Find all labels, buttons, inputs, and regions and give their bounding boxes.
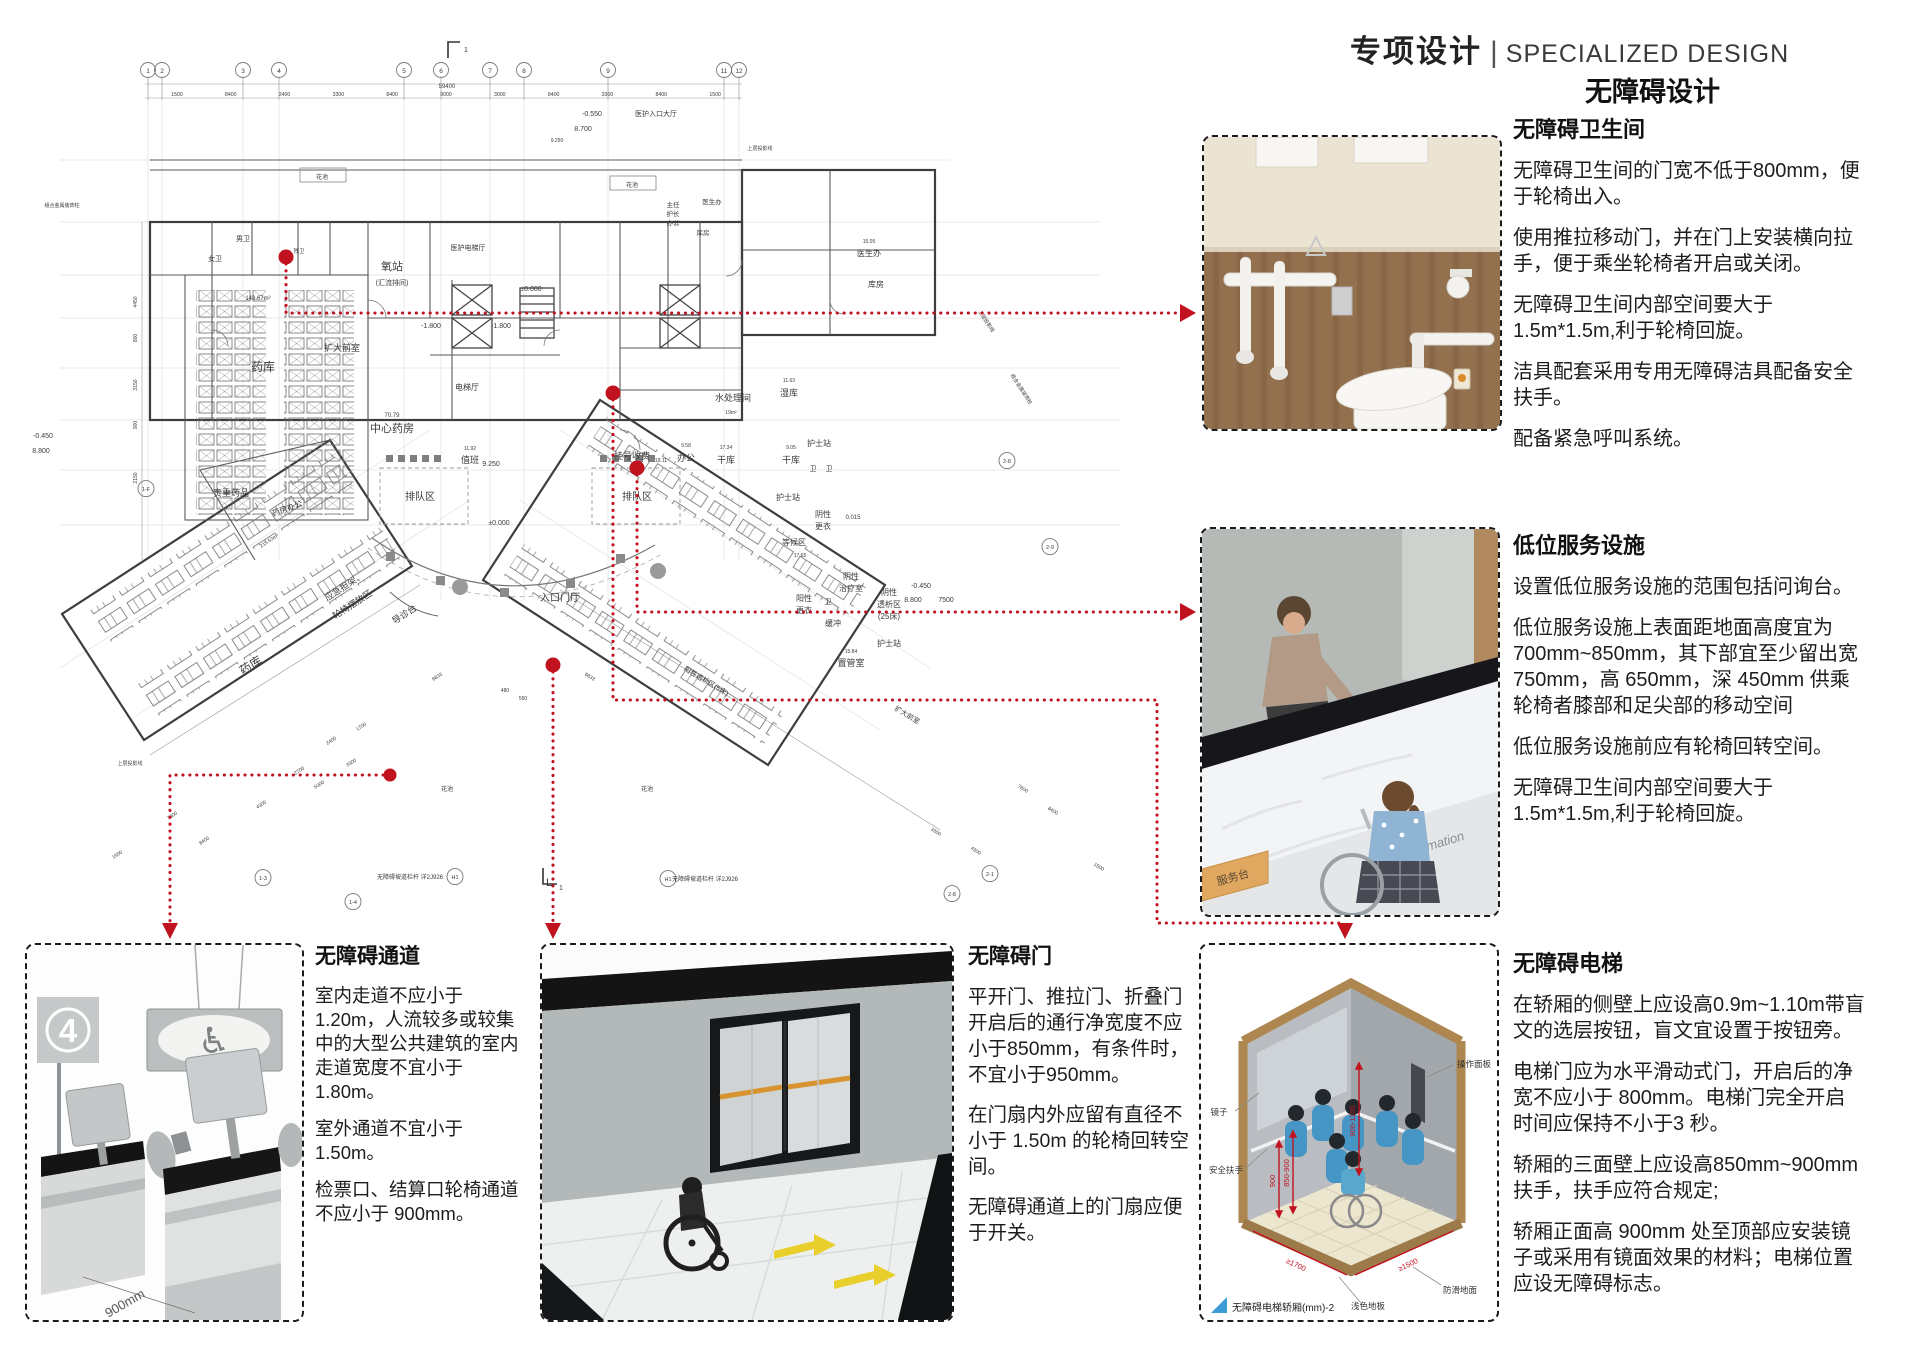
section-accessible-elevator: 无障碍电梯 在轿厢的侧壁上应设高0.9m~1.10m带盲文的选层按钮，盲文宜设置… — [1513, 946, 1865, 1312]
plan-label: 8 — [522, 68, 526, 75]
plan-label: 8400 — [386, 92, 398, 98]
accessible-toilet-photo — [1202, 135, 1502, 431]
plan-label: 水处理间 — [715, 392, 751, 403]
plan-label: 7 — [488, 68, 492, 75]
paragraph: 设置低位服务设施的范围包括问询台。 — [1513, 574, 1865, 600]
plan-label: 9.250 — [482, 461, 500, 468]
plan-label: 11.63 — [783, 378, 795, 384]
plan-label: 4450 — [133, 296, 139, 307]
paragraph: 低位服务设施前应有轮椅回转空间。 — [1513, 734, 1865, 760]
plan-label: 办公 — [667, 218, 681, 227]
plan-label: 2700 — [293, 765, 306, 776]
plan-label: ±0.000 — [520, 286, 541, 293]
plan-label: 3000 — [494, 92, 506, 98]
plan-label: 库房 — [868, 279, 884, 289]
plan-label: 3 — [241, 68, 245, 75]
plan-label: -1.800 — [421, 323, 441, 330]
plan-label: 置管室 — [837, 657, 864, 668]
plan-label: 4300 — [255, 799, 268, 810]
plan-label: 等候区 — [782, 537, 806, 547]
plan-label: 无障碍坡道栏杆 详2J926 — [672, 875, 739, 883]
low-counter-render: Information 服务台 — [1200, 527, 1500, 917]
plan-label: 医生办 — [857, 248, 881, 258]
section-body: 平开门、推拉门、折叠门开启后的通行净宽度不应小于850mm，有条件时，不宜小于9… — [968, 984, 1192, 1246]
plan-label: 1500 — [1092, 862, 1105, 873]
plan-label: 组合金属装饰柱 — [44, 202, 79, 209]
section-body: 室内走道不应小于1.20m，人流较多或较集中的大型公共建筑的室内走道宽度不宜小于… — [315, 984, 521, 1226]
plan-label: 8400 — [655, 92, 667, 98]
plan-label: 3300 — [929, 827, 942, 838]
plan-label: 148.67m² — [245, 296, 270, 302]
plan-label: 花池 — [641, 785, 653, 793]
plan-shelving — [85, 290, 867, 745]
plan-label: 药库 — [251, 359, 275, 374]
plan-label: 8.800 — [32, 448, 50, 455]
page: 专项设计|SPECIALIZED DESIGN 无障碍设计 — [0, 0, 1920, 1358]
section-body: 在轿厢的侧壁上应设高0.9m~1.10m带盲文的选层按钮，盲文宜设置于按钮旁。电… — [1513, 992, 1865, 1297]
plan-label: 800 — [133, 334, 139, 343]
plan-label: 480 — [501, 688, 510, 694]
plan-label: 2400 — [279, 92, 291, 98]
plan-label: 护士站 — [807, 438, 831, 448]
plan-label: ±0.000 — [488, 520, 509, 527]
lift-figure-caption: 无障碍电梯轿厢(mm)-2 — [1232, 1301, 1335, 1314]
paragraph: 轿厢的三面壁上应设高850mm~900mm 扶手，扶手应符合规定; — [1513, 1152, 1865, 1204]
label-control-panel: 操作面板 — [1457, 1059, 1492, 1069]
plan-label: 1-F — [142, 487, 151, 493]
plan-label: 排队区 — [405, 490, 435, 503]
plan-label: 无障碍坡道栏杆 详2J926 — [377, 873, 444, 881]
paragraph: 洁具配套采用专用无障碍洁具配备安全扶手。 — [1513, 359, 1865, 411]
plan-label: 阴性 — [815, 509, 831, 519]
plan-label: 上层投影线 — [117, 760, 142, 767]
plan-label: 卫 — [825, 598, 832, 606]
plan-label: 5300 — [313, 779, 326, 790]
plan-elevator-cores — [452, 285, 700, 348]
plan-label: 干库 — [782, 454, 800, 465]
plan-label: 550 — [519, 696, 528, 702]
label-antislip-floor: 防滑地面 — [1443, 1285, 1478, 1295]
section-low-counter: 低位服务设施 设置低位服务设施的范围包括问询台。低位服务设施上表面距地面高度宜为… — [1513, 528, 1865, 842]
plan-room-labels: 男卫女卫残卫药库148.67m²氧站(汇流排间)医护电梯厅扩大前室中心药房70.… — [32, 47, 1105, 892]
plan-label: 更衣 — [815, 521, 831, 531]
plan-label: -1.800 — [491, 323, 511, 330]
plan-label: 9.250 — [551, 138, 564, 144]
arrow-right-icon — [1180, 304, 1196, 322]
paragraph: 无障碍通道上的门扇应便于开关。 — [968, 1194, 1192, 1246]
section-body: 无障碍卫生间的门宽不低于800mm，便于轮椅出入。使用推拉移动门，并在门上安装横… — [1513, 158, 1865, 452]
paragraph: 在门扇内外应留有直径不小于 1.50m 的轮椅回转空间。 — [968, 1102, 1192, 1180]
dim-depth: ≥1700 — [1285, 1256, 1308, 1273]
paragraph: 无障碍卫生间内部空间要大于1.5m*1.5m,利于轮椅回旋。 — [1513, 292, 1865, 344]
plan-label: H1 — [451, 875, 458, 881]
plan-label: 15.05 — [863, 239, 876, 245]
paragraph: 在轿厢的侧壁上应设高0.9m~1.10m带盲文的选层按钮，盲文宜设置于按钮旁。 — [1513, 992, 1865, 1044]
plan-label: 中心药房 — [370, 422, 414, 435]
plan-label: 入口门厅 — [540, 591, 580, 604]
plan-label: 7800 — [1016, 784, 1029, 795]
plan-label: 办公 — [677, 452, 695, 463]
plan-label: 11.92 — [464, 446, 476, 452]
plan-label: 花池 — [626, 181, 638, 189]
plan-label: 3300 — [333, 92, 345, 98]
plan-label: L — [546, 877, 552, 889]
dim-900: 900 — [1268, 1175, 1277, 1188]
plan-label: 护长 — [667, 209, 681, 218]
plan-label: 男卫 — [236, 235, 250, 243]
plan-label: 主任 — [667, 200, 681, 209]
plan-label: 59400 — [439, 84, 456, 90]
plan-label: 8400 — [225, 92, 237, 98]
plan-label: 0.015 — [845, 515, 861, 521]
plan-label: 库房 — [697, 228, 710, 237]
plan-label: 8400 — [1046, 806, 1059, 817]
plan-label: 氧站 — [381, 259, 403, 273]
plan-label: 花池 — [441, 785, 453, 793]
plan-label: 3150 — [133, 379, 139, 390]
plan-label: 8.700 — [574, 126, 592, 133]
plan-label: -0.550 — [582, 111, 602, 118]
accessible-door-render — [540, 943, 954, 1322]
section-accessible-passage: 无障碍通道 室内走道不应小于1.20m，人流较多或较集中的大型公共建筑的室内走道… — [315, 940, 521, 1239]
plan-label: 900 — [133, 421, 139, 430]
paragraph: 无障碍卫生间的门宽不低于800mm，便于轮椅出入。 — [1513, 158, 1865, 210]
plan-label: 1-4 — [349, 900, 357, 906]
plan-label: 1 — [146, 68, 150, 75]
label-mirror: 镜子 — [1210, 1107, 1228, 1117]
plan-label: 阴性 — [843, 571, 859, 581]
plan-top-dimensions: 1500840024003300840090003000840033008400… — [171, 92, 721, 98]
plan-label: 6833 — [431, 671, 444, 682]
label-handrail: 安全扶手 — [1209, 1165, 1244, 1175]
plan-label: 11 — [721, 68, 728, 75]
section-title: 无障碍通道 — [315, 940, 521, 970]
section-title: 无障碍门 — [968, 940, 1192, 970]
plan-label: 7500 — [938, 597, 954, 604]
section-title: 无障碍电梯 — [1513, 946, 1865, 978]
plan-label: 15.84 — [845, 649, 858, 655]
plan-label: 1500 — [111, 849, 124, 860]
plan-label: 干库 — [717, 454, 735, 465]
plan-label: 上层投影线 — [747, 145, 772, 152]
plan-label: 上层投影线 — [977, 309, 996, 334]
plan-label: 2400 — [325, 735, 338, 746]
plan-label: 2 — [160, 68, 164, 75]
plan-label: 缓冲 — [825, 618, 841, 628]
aisle-number: 4 — [59, 1012, 78, 1049]
section-accessible-toilet: 无障碍卫生间 无障碍卫生间的门宽不低于800mm，便于轮椅出入。使用推拉移动门，… — [1513, 112, 1865, 467]
plan-label: 卫 — [810, 465, 817, 473]
section-title: 无障碍卫生间 — [1513, 112, 1865, 144]
arrow-right-icon — [1180, 603, 1196, 621]
header-title-cn: 专项设计 — [1350, 34, 1482, 69]
plan-label: 医护电梯厅 — [451, 243, 486, 252]
arrow-down-icon — [1337, 923, 1353, 939]
paper-holder-icon — [1450, 269, 1472, 277]
plan-label: 17.34 — [720, 445, 733, 451]
plan-label: 17.65 — [794, 553, 807, 559]
plan-label: 电梯厅 — [455, 382, 479, 392]
paragraph: 室外通道不宜小于1.50m。 — [315, 1117, 521, 1165]
section-body: 设置低位服务设施的范围包括问询台。低位服务设施上表面距地面高度宜为700mm~8… — [1513, 574, 1865, 827]
plan-label: 4300 — [969, 846, 982, 857]
flush-panel-icon — [1332, 287, 1352, 315]
plan-label: 9.58 — [681, 443, 691, 449]
page-subtitle: 无障碍设计 — [1350, 70, 1720, 109]
plan-label: 19m² — [725, 410, 737, 416]
plan-label: 护士站 — [877, 638, 901, 648]
plan-label: 4 — [277, 68, 281, 75]
plan-label: 贵重药品 — [213, 487, 249, 498]
plan-label: -0.450 — [911, 583, 931, 590]
plan-label: 1-3 — [259, 876, 267, 882]
plan-label: 治疗室 — [839, 583, 863, 593]
plan-label: 花池 — [316, 173, 328, 181]
plan-label: -0.450 — [33, 433, 53, 440]
accessible-elevator-render: 900 850-900 900-1100 ≥1700 ≥1500 镜子 安全扶手… — [1199, 943, 1499, 1322]
plan-label: 2-9 — [1046, 545, 1054, 551]
plan-label: 湿库 — [780, 387, 798, 398]
plan-label: 8.800 — [904, 597, 922, 604]
plan-label: 7800 — [166, 810, 179, 821]
plan-label: 扩大前室 — [893, 704, 922, 726]
plan-label: 值班 — [461, 454, 479, 465]
plan-label: 70.79 — [384, 413, 400, 419]
paper-roll-icon — [1447, 276, 1469, 298]
paragraph: 电梯门应为水平滑动式门，开启后的净宽不应小于 800mm。电梯门完全开启时间应保… — [1513, 1059, 1865, 1137]
plan-label: 医生办 — [702, 197, 722, 206]
dim-900-1100: 900-1100 — [1348, 1105, 1357, 1136]
plan-label: 3300 — [345, 757, 358, 768]
plan-label: 6 — [439, 68, 443, 75]
plan-label: 医护入口大厅 — [635, 109, 677, 118]
plan-label: 2-1 — [986, 872, 994, 878]
paragraph: 室内走道不应小于1.20m，人流较多或较集中的大型公共建筑的室内走道宽度不宜小于… — [315, 984, 521, 1104]
header-title-en: SPECIALIZED DESIGN — [1506, 40, 1789, 68]
paragraph: 使用推拉移动门，并在门上安装横向拉手，便于乘坐轮椅者开启或关闭。 — [1513, 225, 1865, 277]
plan-label: 导诊台 — [390, 602, 419, 626]
page-header: 专项设计|SPECIALIZED DESIGN — [1350, 26, 1720, 71]
paragraph: 低位服务设施上表面距地面高度宜为700mm~850mm，其下部宜至少留出宽 75… — [1513, 615, 1865, 719]
dim-850-900: 850-900 — [1282, 1159, 1291, 1187]
accessible-passage-render: 4 ♿ — [25, 943, 304, 1322]
plan-label: 18.11 — [655, 458, 667, 464]
plan-label: 12 — [735, 68, 743, 75]
plan-label: 组合金属装饰柱 — [1009, 373, 1034, 406]
plan-label: 9000 — [440, 92, 452, 98]
dim-width: ≥1500 — [1397, 1256, 1420, 1273]
plan-label: 挂号收费 — [614, 450, 650, 461]
plan-label: 1 — [464, 47, 468, 54]
plan-label: H1 — [664, 877, 671, 883]
plan-label: 5 — [402, 68, 406, 75]
plan-label: 阴性 — [881, 587, 897, 597]
plan-label: 8400 — [198, 835, 211, 846]
plan-label: 3300 — [602, 92, 614, 98]
caption-triangle-icon — [1211, 1297, 1227, 1313]
header-divider: | — [1490, 36, 1498, 69]
plan-label: 护士站 — [776, 492, 800, 502]
plan-label: 1700 — [355, 721, 368, 732]
plan-label: 1 — [559, 885, 563, 892]
plan-label: 9 — [606, 68, 610, 75]
sliding-door-leaves — [720, 1013, 850, 1166]
plan-label: 8400 — [548, 92, 560, 98]
plan-label: 排队区 — [622, 490, 652, 503]
paragraph: 平开门、推拉门、折叠门开启后的通行净宽度不应小于850mm，有条件时，不宜小于9… — [968, 984, 1192, 1088]
plan-label: 1500 — [709, 92, 721, 98]
paragraph: 配备紧急呼叫系统。 — [1513, 426, 1865, 452]
plan-label: 2150 — [133, 472, 139, 483]
plan-label: 残卫 — [293, 247, 305, 255]
floor-plan: 12345678911121-F1-31-42-82-12-82-9H1H1 1… — [15, 34, 1175, 936]
plan-label: 卫 — [826, 465, 833, 473]
plan-label: 女卫 — [208, 254, 222, 263]
plan-label: 1500 — [171, 92, 183, 98]
plan-label: 透析区 — [877, 599, 901, 609]
plan-label: 扩大前室 — [324, 342, 360, 353]
plan-grid-bubbles: 12345678911121-F1-31-42-82-12-82-9H1H1 — [138, 63, 1058, 910]
plan-label: 2-8 — [948, 892, 956, 898]
section-title: 低位服务设施 — [1513, 528, 1865, 560]
plan-label: 2-8 — [1003, 459, 1011, 465]
plan-label: (汇流排间) — [376, 278, 409, 287]
plan-label: (25床) — [878, 611, 901, 621]
paragraph: 无障碍卫生间内部空间要大于1.5m*1.5m,利于轮椅回旋。 — [1513, 775, 1865, 827]
plan-label: 更衣 — [796, 605, 812, 615]
label-light-floor: 浅色地板 — [1351, 1301, 1386, 1311]
paragraph: 轿厢正面高 900mm 处至顶部应安装镜子或采用有镜面效果的材料；电梯位置应设无… — [1513, 1219, 1865, 1297]
plan-label: 9.05 — [786, 445, 796, 451]
section-accessible-door: 无障碍门 平开门、推拉门、折叠门开启后的通行净宽度不应小于850mm，有条件时，… — [968, 940, 1192, 1260]
plan-label: 阳性 — [796, 593, 812, 603]
paragraph: 检票口、结算口轮椅通道不应小于 900mm。 — [315, 1178, 521, 1226]
plan-label: 6833 — [583, 672, 596, 683]
